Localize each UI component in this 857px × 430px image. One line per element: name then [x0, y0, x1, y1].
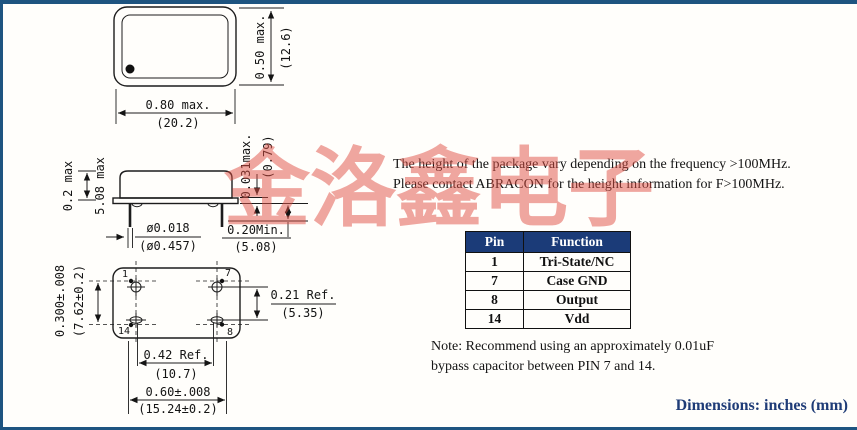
- callout-line-1: The height of the package vary depending…: [393, 155, 853, 175]
- pin-table-header-row: Pin Function: [466, 232, 631, 253]
- dim-sideview-leaddia-in: ø0.018: [146, 221, 189, 235]
- dim-bottomview-ref-in: 0.21 Ref.: [270, 288, 335, 302]
- note-line-1: Note: Recommend using an approximately 0…: [431, 337, 851, 357]
- pin-function-cell: Vdd: [524, 310, 631, 329]
- pin-label-14: 14: [118, 326, 130, 337]
- top-accent-bar: [0, 0, 857, 4]
- bottom-view-drawing: 1 7 14 8 0.300±.008 (7.62±0.2) 0.21 Ref.…: [53, 261, 336, 416]
- dim-sideview-leadlen-mm: (5.08): [234, 240, 277, 254]
- pin-function-cell: Case GND: [524, 272, 631, 291]
- dim-bottomview-rowpitch-in: 0.300±.008: [53, 265, 67, 337]
- dim-sideview-leadlen-in: 0.20Min.: [227, 223, 285, 237]
- dim-bottomview-ref-mm: (5.35): [281, 306, 324, 320]
- dim-bottomview-colpitch-mm: (10.7): [154, 367, 197, 381]
- table-row: 14 Vdd: [466, 310, 631, 329]
- dim-topview-width-in: 0.80 max.: [145, 98, 210, 112]
- dim-topview-width-mm: (20.2): [156, 116, 199, 130]
- dim-sideview-seat-in: 0.031max.: [239, 133, 253, 198]
- pin-number-cell: 7: [466, 272, 524, 291]
- dim-topview-height-in: 0.50 max.: [253, 14, 267, 79]
- table-row: 1 Tri-State/NC: [466, 253, 631, 272]
- dim-sideview-leaddia-mm: (ø0.457): [139, 239, 197, 253]
- pin-function-cell: Tri-State/NC: [524, 253, 631, 272]
- dimensions-units-label: Dimensions: inches (mm): [676, 397, 848, 415]
- pin-function-cell: Output: [524, 291, 631, 310]
- note-line-2: bypass capacitor between PIN 7 and 14.: [431, 357, 851, 377]
- pin-label-1: 1: [122, 269, 128, 280]
- pin-table-header-pin: Pin: [466, 232, 524, 253]
- left-accent-bar: [0, 0, 3, 430]
- pin1-index-dot: [126, 65, 135, 74]
- pin-label-7: 7: [225, 268, 231, 279]
- dim-bottomview-rowpitch-mm: (7.62±0.2): [72, 265, 86, 337]
- dim-topview-height-mm: (12.6): [279, 26, 293, 69]
- pin-number-cell: 1: [466, 253, 524, 272]
- datasheet-drawing-page: 0.50 max. (12.6) 0.80 max. (20.2) 0.2 ma…: [0, 0, 857, 430]
- table-row: 7 Case GND: [466, 272, 631, 291]
- callout-line-2: Please contact ABRACON for the height in…: [393, 175, 853, 195]
- dim-bottomview-width-mm: (15.24±0.2): [138, 402, 217, 416]
- dim-bottomview-colpitch-in: 0.42 Ref.: [143, 348, 208, 362]
- dim-bottomview-width-in: 0.60±.008: [145, 385, 210, 399]
- dim-sideview-bodyheight-in: 0.2 max: [61, 161, 75, 212]
- table-row: 8 Output: [466, 291, 631, 310]
- pin-table-header-function: Function: [524, 232, 631, 253]
- pin-function-table: Pin Function 1 Tri-State/NC 7 Case GND 8…: [465, 231, 631, 329]
- dim-sideview-seat-mm: (0.79): [261, 135, 275, 178]
- height-callout-paragraph: The height of the package vary depending…: [393, 155, 853, 195]
- dim-sideview-bodyheight-mm: 5.08 max: [93, 157, 107, 215]
- side-view-drawing: 0.2 max 5.08 max 0.031max. (0.79) 0.20Mi…: [61, 133, 308, 254]
- pin-label-8: 8: [227, 327, 233, 338]
- pin-number-cell: 14: [466, 310, 524, 329]
- pin-crosshairs: [126, 278, 227, 327]
- pin-number-cell: 8: [466, 291, 524, 310]
- bypass-capacitor-note: Note: Recommend using an approximately 0…: [431, 337, 851, 377]
- top-view-drawing: 0.50 max. (12.6) 0.80 max. (20.2): [114, 7, 293, 130]
